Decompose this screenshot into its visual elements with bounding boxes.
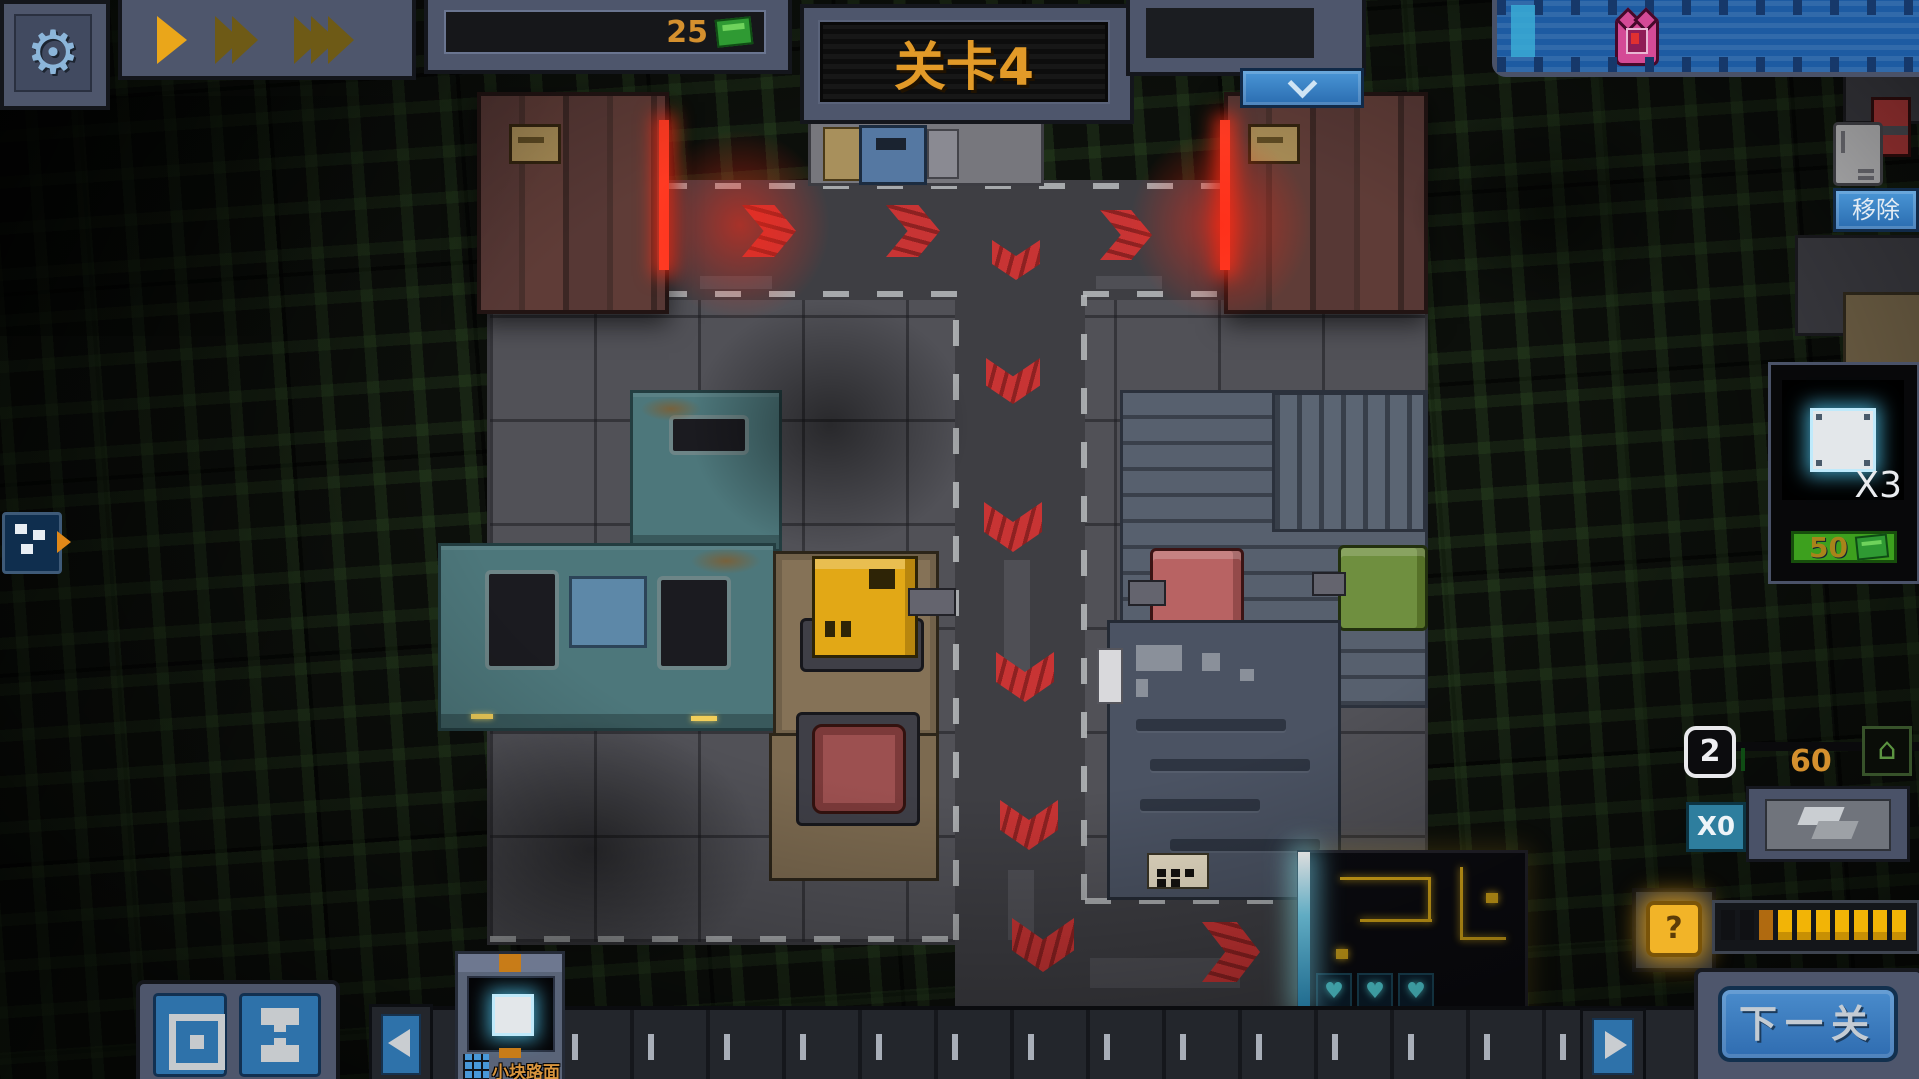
- mystery-chip-label: ?: [1665, 911, 1682, 946]
- selected-item-card[interactable]: 小块路面: [455, 951, 565, 1079]
- count-badge-value: 2: [1700, 734, 1721, 769]
- remove-button[interactable]: 移除: [1833, 188, 1919, 232]
- chip-panel: ?: [1632, 888, 1716, 972]
- shop-card-price: 50: [1809, 531, 1848, 564]
- level-title: 关卡4: [894, 25, 1034, 100]
- cpu-icon: [169, 1014, 225, 1070]
- shop-card-count: X3: [1854, 465, 1902, 506]
- progress-segment: [1778, 910, 1792, 940]
- gate-hatch: [509, 124, 561, 164]
- door-window: [876, 138, 906, 150]
- tiles-icon: [1765, 799, 1891, 851]
- turret-arm: [1312, 572, 1346, 596]
- speed-panel: [118, 0, 416, 80]
- spawn-structure: [808, 118, 1044, 186]
- item-toolbar: [406, 1006, 1770, 1079]
- home-icon: ⌂: [1862, 726, 1912, 776]
- light-strip: [471, 714, 493, 719]
- join-icon: [261, 1008, 299, 1025]
- next-level-panel: 下一关: [1694, 968, 1919, 1079]
- chevron-down-icon: [1287, 69, 1317, 99]
- progress-segment: [1759, 910, 1773, 940]
- red-turret[interactable]: [812, 724, 906, 814]
- base-health: ♥ ♥ ♥: [1316, 973, 1434, 1009]
- white-machine: [1833, 122, 1883, 186]
- card-icon-area: [467, 976, 555, 1052]
- toolbar-left-button[interactable]: [369, 1004, 433, 1079]
- bottom-left-panel: [136, 980, 340, 1079]
- selected-item-label: 小块路面: [492, 1058, 560, 1079]
- green-turret[interactable]: [1338, 545, 1428, 631]
- level-sign: 关卡4: [820, 22, 1108, 102]
- rust-patch: [691, 548, 761, 574]
- keypad: [1147, 853, 1209, 889]
- teal-container-large[interactable]: [438, 543, 776, 731]
- progress-segment: [1892, 910, 1906, 940]
- road-tile-icon: [492, 994, 534, 1036]
- wave-timeline: [1492, 0, 1919, 77]
- shop-card-road-tile[interactable]: X3 50: [1768, 362, 1919, 584]
- progress-segment: [1740, 910, 1754, 940]
- lane-mark: [1004, 560, 1030, 672]
- timeline-cursor: [1511, 5, 1535, 57]
- container-window: [485, 570, 559, 670]
- game-screen: ♥ ♥ ♥ ⚙ 25: [0, 0, 1919, 1079]
- shop-card-icon-area: X3: [1782, 380, 1904, 500]
- toolbar-right-button[interactable]: [1580, 1008, 1646, 1079]
- wave-info-display: [1146, 8, 1314, 58]
- pink-enemy-icon: [1615, 16, 1659, 66]
- heart-icon: ♥: [1357, 973, 1393, 1009]
- progress-segment: [1721, 910, 1735, 940]
- speed-2x-button[interactable]: [232, 16, 258, 64]
- money-panel: 25: [424, 0, 792, 74]
- road-tile-icon: [1810, 408, 1876, 472]
- connect-menu-button[interactable]: [239, 993, 321, 1077]
- cash-icon: [1741, 748, 1745, 771]
- next-level-button[interactable]: 下一关: [1718, 986, 1898, 1062]
- tile-counter-value: X0: [1697, 812, 1735, 842]
- shadow: [0, 96, 470, 336]
- settings-panel: ⚙: [0, 0, 110, 110]
- chip-menu-button[interactable]: [153, 993, 227, 1077]
- wave-info-panel: [1126, 0, 1366, 76]
- grid-icon: [463, 1054, 489, 1079]
- turret-arm: [1128, 580, 1166, 606]
- count-badge: 2: [1684, 726, 1736, 778]
- speed-3x-button[interactable]: [328, 16, 354, 64]
- gate-glow: [1130, 130, 1310, 320]
- tech-tree-button[interactable]: [2, 512, 62, 574]
- enemy-gate-left: [477, 92, 669, 314]
- next-level-label: 下一关: [1739, 1002, 1877, 1046]
- shadow: [690, 300, 970, 550]
- progress-segment: [1797, 910, 1811, 940]
- card-tab: [499, 1048, 521, 1058]
- mystery-chip-button[interactable]: ?: [1646, 901, 1702, 957]
- wave-progress-bar: [1712, 900, 1919, 954]
- progress-segment: [1835, 910, 1849, 940]
- yellow-turret[interactable]: [812, 556, 918, 658]
- progress-segment: [1816, 910, 1830, 940]
- collapse-button[interactable]: [1240, 68, 1364, 108]
- progress-segment: [1854, 910, 1868, 940]
- heart-icon: ♥: [1398, 973, 1434, 1009]
- spawn-door: [859, 125, 927, 185]
- remove-label: 移除: [1852, 196, 1900, 224]
- turret-arm: [908, 588, 956, 616]
- gear-icon: ⚙: [16, 16, 90, 90]
- player-base[interactable]: ♥ ♥ ♥: [1297, 850, 1528, 1018]
- money-display: 25: [444, 10, 766, 54]
- white-box: [1097, 648, 1123, 704]
- pillar: [927, 129, 959, 179]
- edge-building-tan: [1843, 292, 1919, 368]
- cage-top: [1272, 392, 1426, 532]
- cash-icon: [1855, 533, 1889, 560]
- tile-counter: X0: [1686, 802, 1746, 852]
- settings-button[interactable]: ⚙: [14, 14, 92, 92]
- energy-pillar: [1298, 852, 1310, 1010]
- cash-icon: [715, 16, 754, 48]
- shop-card-price-bar: 50: [1791, 531, 1897, 563]
- shadow: [420, 720, 760, 980]
- shadow: [1410, 100, 1690, 320]
- progress-segment: [1873, 910, 1887, 940]
- container-panel: [569, 576, 647, 648]
- gate-glow: [650, 130, 830, 320]
- build-price: 60: [1790, 744, 1832, 779]
- join-icon: [261, 1045, 299, 1062]
- road-edge-dashes: [1081, 295, 1087, 900]
- money-value: 25: [666, 15, 708, 50]
- container-window: [657, 576, 731, 670]
- heart-icon: ♥: [1316, 973, 1352, 1009]
- speed-1x-button[interactable]: [157, 16, 187, 64]
- tiles-panel[interactable]: [1746, 786, 1910, 862]
- card-tab: [499, 954, 521, 972]
- level-panel: 关卡4: [800, 4, 1134, 124]
